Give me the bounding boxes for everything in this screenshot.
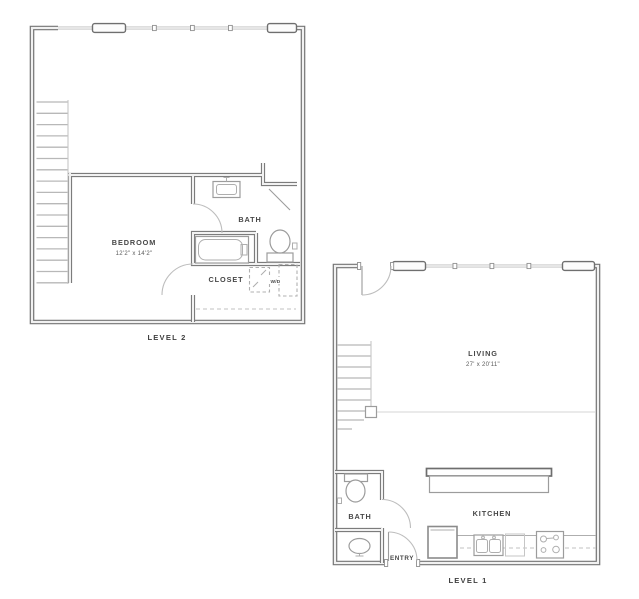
- kitchen-label: KITCHEN: [473, 509, 512, 518]
- entry-label: ENTRY: [390, 555, 414, 562]
- window-mullion: [229, 25, 233, 30]
- window: [268, 24, 297, 33]
- level2-bedroom-dims: 12'2" x 14'2": [116, 251, 153, 257]
- door-swing: [382, 500, 411, 529]
- vanity-sink-fixture: [349, 539, 370, 557]
- door-swing: [193, 204, 222, 233]
- window-mullion: [453, 263, 457, 268]
- level2-closet-label: CLOSET: [209, 275, 244, 284]
- bathroom-sink-fixture: [213, 178, 240, 198]
- living-dims: 27' x 20'11": [466, 362, 500, 368]
- level1-floorplan: LIVING 27' x 20'11" BATH KITCHEN ENTRY L…: [335, 262, 598, 585]
- level1-bath-label: BATH: [348, 512, 371, 521]
- level1-label: LEVEL 1: [448, 576, 487, 585]
- door-jamb: [358, 263, 361, 270]
- window-mullion: [490, 263, 494, 268]
- window: [93, 24, 126, 33]
- refrigerator-fixture: [428, 527, 457, 559]
- washer-dryer-label: W/D: [271, 279, 281, 285]
- level2-label: LEVEL 2: [147, 333, 186, 342]
- dishwasher-fixture: [506, 534, 525, 556]
- living-label: LIVING: [468, 349, 498, 358]
- level1-stairs: [337, 341, 377, 429]
- door-jamb: [417, 560, 420, 567]
- window-mullion: [153, 25, 157, 30]
- door-swing: [162, 264, 193, 295]
- stove-fixture: [537, 532, 564, 559]
- floor-plan-page: BEDROOM 12'2" x 14'2" BATH CLOSET W/D LE…: [0, 0, 639, 599]
- window: [393, 262, 426, 271]
- level2-interior-walls: [68, 163, 300, 322]
- level2-bath-label: BATH: [238, 215, 261, 224]
- level2-windows: [93, 24, 297, 33]
- kitchen-sink-fixture: [474, 535, 503, 556]
- bathtub-fixture: [196, 237, 249, 264]
- floor-plan-drawing: BEDROOM 12'2" x 14'2" BATH CLOSET W/D LE…: [0, 0, 639, 599]
- toilet-fixture: [267, 230, 297, 262]
- kitchen-island: [427, 469, 552, 493]
- window: [563, 262, 595, 271]
- level2-floorplan: BEDROOM 12'2" x 14'2" BATH CLOSET W/D LE…: [32, 24, 303, 342]
- door-jamb: [385, 560, 388, 567]
- level1-windows: [393, 262, 595, 271]
- window-mullion: [191, 25, 195, 30]
- window-mullion: [527, 263, 531, 268]
- door-leaf: [269, 189, 290, 210]
- level2-bedroom-label: BEDROOM: [112, 238, 156, 247]
- level2-stairs: [37, 100, 69, 284]
- door-swing: [362, 266, 391, 295]
- toilet-fixture: [338, 474, 368, 504]
- stair-newel-post: [366, 407, 377, 418]
